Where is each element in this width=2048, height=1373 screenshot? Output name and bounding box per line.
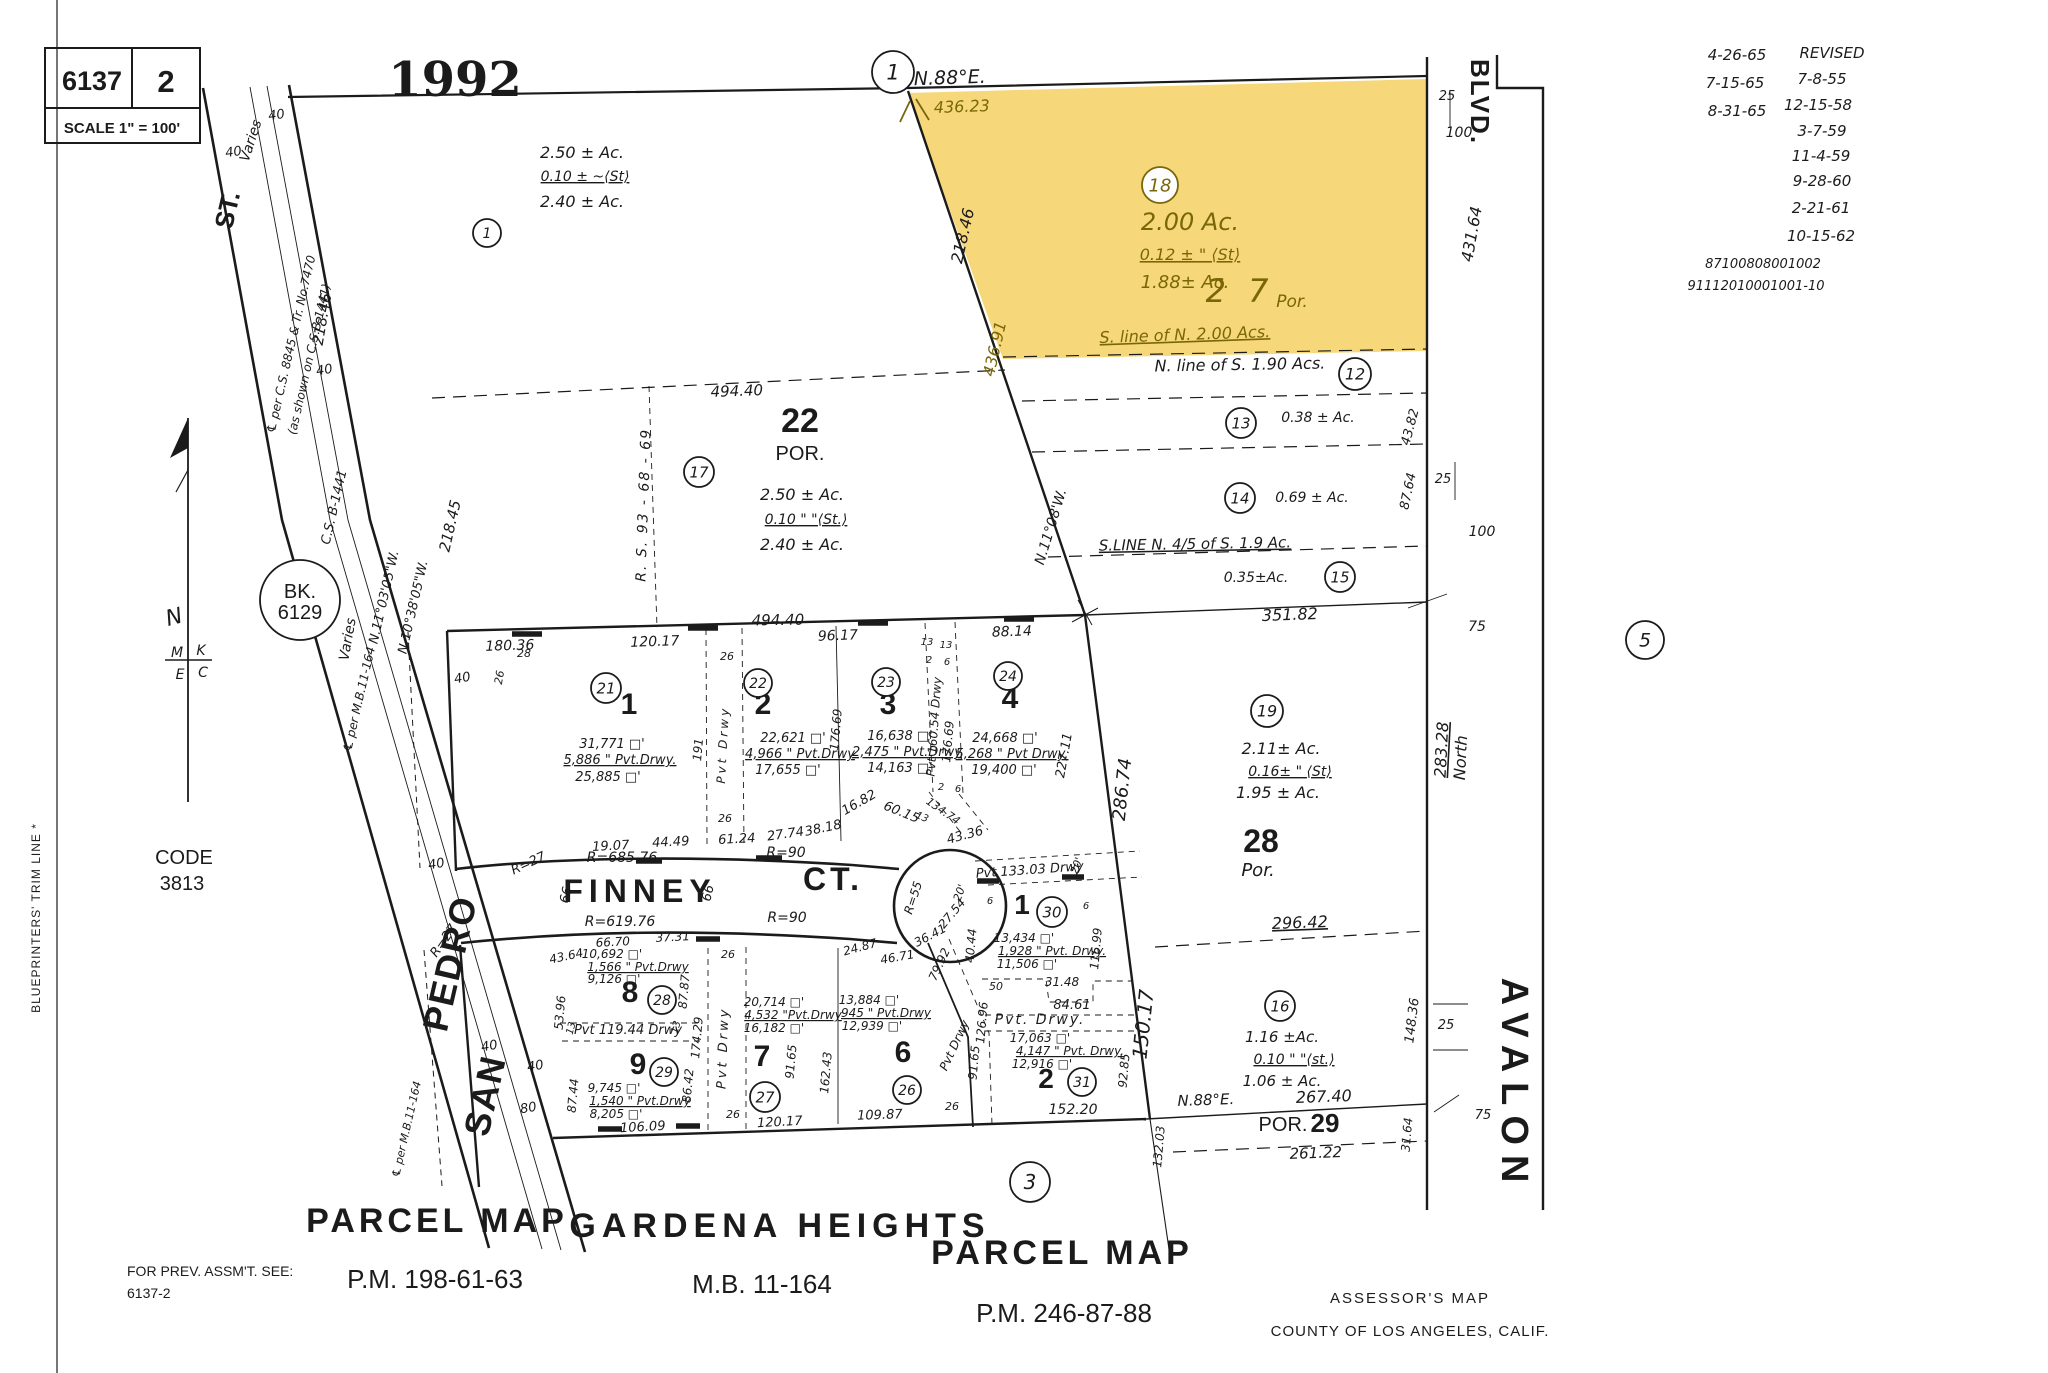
dim-26-a: 26 (492, 669, 507, 685)
dim-87-44: 87.44 (565, 1078, 582, 1113)
lot8-area-1: 10,692 □' (582, 947, 642, 961)
apn-number-2: 91112010001001-10 (1687, 279, 1824, 294)
lot9-area-2: 1,540 " Pvt.Drwy (589, 1094, 691, 1108)
dim-26-c: 26 (718, 812, 732, 825)
dim-120-17-b: 120.17 (757, 1114, 804, 1131)
lot4-area-1: 24,668 □' (972, 731, 1037, 746)
revision-date-b2: 12-15-58 (1784, 96, 1852, 114)
dim-50: 50 (989, 980, 1003, 993)
dim-120-17-a: 120.17 (630, 633, 680, 651)
parcel22-acreage-1: 2.50 ± Ac. (760, 485, 844, 504)
circle-lot-23-label: 23 (877, 675, 895, 691)
dim-174-29: 174.29 (688, 1016, 706, 1059)
parcel28-por: Por. (1241, 860, 1274, 881)
dim-46-71: 46.71 (879, 947, 915, 967)
dim-87-87: 87.87 (676, 974, 693, 1010)
lot6-number: 6 (895, 1036, 912, 1069)
revision-date-b3: 3-7-59 (1798, 122, 1847, 140)
dim-494-40-s: 494.40 (752, 611, 805, 630)
pvt-drwy-5: Pvt. Drwy. (995, 1012, 1086, 1028)
lot30-number: 1 (1014, 889, 1030, 920)
revision-header: REVISED (1799, 44, 1864, 62)
compass-c: C (198, 665, 208, 681)
dim-218-45: 218.45 (435, 498, 464, 553)
circle-lot-28-label: 28 (653, 993, 671, 1009)
circle-lot-27: 27 (750, 1082, 780, 1112)
dim-38-18: 38.18 (804, 817, 844, 839)
circle-1-top: 1 (872, 51, 914, 93)
radius-90-a: R=90 (766, 845, 805, 861)
circle-lot-30-label: 30 (1042, 903, 1061, 921)
dim-267-40: 267.40 (1296, 1086, 1353, 1107)
lot30-area-3: 11,506 □' (997, 957, 1057, 971)
sheet-number: 6137 (62, 66, 122, 96)
dim-25-bottom: 25 (1438, 1018, 1455, 1033)
parcel29-por: POR. (1259, 1114, 1308, 1136)
dim-26-b: 26 (720, 650, 734, 663)
lot7-area-1: 20,714 □' (744, 995, 804, 1009)
san-pedro-street-lines (203, 85, 585, 1252)
dim-13-a: 13 (921, 637, 934, 648)
circle-parcel-13: 13 (1226, 408, 1256, 438)
dim-40-e: 40 (427, 856, 446, 874)
bearing-san-pedro-1: N.11°03'05"W. (367, 549, 403, 645)
parcel16-acreage-1: 1.16 ±Ac. (1245, 1028, 1319, 1046)
title-pm-198: P.M. 198-61-63 (347, 1264, 523, 1294)
parcel1-acreage-2: 0.10 ± ~⟨St⟩ (541, 169, 630, 185)
dim-80: 80 (519, 1100, 538, 1118)
lot9-number: 9 (630, 1048, 647, 1081)
lot1-number: 1 (621, 688, 638, 721)
bearing-bottom: N.88°E. (1177, 1090, 1234, 1110)
dim-2-b: 2 (938, 782, 944, 793)
circle-parcel-18-label: 18 (1149, 175, 1172, 196)
circle-lot-24: 24 (994, 662, 1022, 690)
dim-27-74: 27.74 (766, 825, 805, 845)
dim-191: 191 (690, 738, 706, 762)
dim-6-b: 6 (955, 784, 961, 795)
lot1-area-1: 31,771 □' (579, 737, 644, 752)
parcel18-acreage-1: 2.00 Ac. (1141, 208, 1239, 236)
parcel14-acreage: 0.69 ± Ac. (1275, 490, 1349, 506)
circle-lot-28: 28 (648, 986, 676, 1014)
circle-parcel-1-label: 1 (483, 226, 492, 242)
dim-176-69-a: 176.69 (827, 708, 845, 751)
parcel29-number: 29 (1311, 1108, 1340, 1138)
title-parcel-map-1: PARCEL MAP (306, 1202, 568, 1240)
lot31-number: 2 (1038, 1063, 1054, 1094)
dim-75-bottom: 75 (1475, 1108, 1492, 1123)
circle-parcel-13-label: 13 (1231, 414, 1250, 432)
dim-6-d: 6 (1083, 901, 1089, 912)
code-label: CODE (155, 847, 213, 869)
circle-lot-31: 31 (1068, 1068, 1096, 1096)
circle-lot-29: 29 (650, 1058, 678, 1086)
dim-26-e: 26 (726, 1108, 740, 1121)
circle-1-top-label: 1 (886, 60, 899, 84)
dim-31-48: 31.48 (1045, 975, 1080, 989)
line-351-82 (1085, 602, 1427, 615)
circle-lot-27-label: 27 (755, 1088, 775, 1106)
dim-26-f: 26 (945, 1100, 959, 1113)
dashed-strip-lines (432, 349, 1427, 628)
line-296-42 (1155, 931, 1427, 947)
lot8-area-3: 9,126 □' (588, 972, 641, 986)
revision-date-a1: 4-26-65 (1708, 46, 1767, 64)
circle-lot-21-label: 21 (596, 679, 615, 697)
dim-40-g: 40 (526, 1058, 545, 1076)
dim-25-mid: 25 (1435, 472, 1452, 487)
prev-assmt-1: FOR PREV. ASSM'T. SEE: (127, 1263, 293, 1279)
compass-n: N (163, 604, 185, 632)
circle-lot-24-label: 24 (999, 669, 1017, 685)
radius-685-76: R=685.76 (587, 850, 658, 866)
dim-227-11: 227.11 (1053, 732, 1076, 779)
circle-parcel-16-label: 16 (1270, 997, 1289, 1015)
circle-parcel-19: 19 (1251, 695, 1283, 727)
parcel19-acreage-3: 1.95 ± Ac. (1236, 783, 1320, 802)
street-name-avalon: AVALON (1493, 978, 1535, 1193)
dim-40-c: 40 (315, 362, 334, 380)
dim-162-43: 162.43 (817, 1051, 835, 1094)
circle-lot-31-label: 31 (1073, 1075, 1091, 1091)
assessor-map-2: COUNTY OF LOS ANGELES, CALIF. (1271, 1323, 1550, 1340)
assessor-map-page: 61372SCALE 1" = 100'19924-26-657-15-658-… (0, 0, 2048, 1373)
lot7-area-3: 16,182 □' (744, 1021, 804, 1035)
dim-43-82: 43.82 (1399, 407, 1423, 447)
sheet-page: 2 (157, 64, 174, 99)
dim-96-17: 96.17 (818, 627, 859, 644)
dim-43-64: 43.64 (548, 946, 585, 967)
circle-parcel-19-label: 19 (1257, 702, 1277, 721)
dim-60-15: 60.15 (881, 799, 921, 827)
parcel18-acreage-2: 0.12 ± " ⟨St⟩ (1140, 245, 1241, 264)
varies-label-2: Varies (336, 617, 359, 662)
rs-ref: R. S. 93 - 68 - 69 (633, 428, 654, 582)
circle-lot-26-label: 26 (898, 1083, 916, 1099)
lot30-area-1: 13,434 □' (994, 931, 1054, 945)
dim-126-96: 126.96 (973, 1001, 991, 1044)
dim-31-64: 31.64 (1399, 1117, 1416, 1152)
revision-date-b6: 2-21-61 (1792, 199, 1851, 217)
title-mb-11-164: M.B. 11-164 (692, 1269, 832, 1299)
dim-431-64: 431.64 (1457, 205, 1485, 263)
circle-lot-23: 23 (872, 668, 900, 696)
dim-26-d: 26 (721, 948, 735, 961)
lot9-area-1: 9,745 □' (588, 1081, 641, 1095)
circle-lot-30: 30 (1037, 897, 1067, 927)
dim-40-f: 40 (480, 1038, 499, 1056)
circle-lot-26: 26 (893, 1076, 921, 1104)
dim-86-42: 86.42 (680, 1068, 697, 1103)
parcel22-number: 22 (781, 402, 819, 440)
dim-40-a: 40 (267, 107, 285, 124)
circle-parcel-15: 15 (1325, 562, 1355, 592)
title-gardena-heights: GARDENA HEIGHTS (569, 1207, 990, 1245)
radius-619-76: R=619.76 (585, 914, 656, 930)
dim-40-d: 40 (453, 670, 472, 688)
circle-book-6129: BK.6129 (260, 560, 340, 640)
street-suffix-st: ST. (208, 188, 246, 231)
dim-494-40-n: 494.40 (710, 381, 763, 401)
circle-lot-21: 21 (591, 673, 621, 703)
dim-106-09: 106.09 (620, 1119, 666, 1136)
radius-27-a: R=27 (509, 849, 549, 878)
dim-286-74: 286.74 (1109, 757, 1136, 822)
dim-25-top: 25 (1439, 89, 1456, 104)
dim-116-99: 116.99 (1087, 927, 1105, 970)
lot3-area-1: 16,638 □' (867, 729, 932, 744)
dim-6-a: 6 (944, 657, 950, 668)
dim-152-20: 152.20 (1049, 1102, 1098, 1118)
parcel-map-canvas: 61372SCALE 1" = 100'19924-26-657-15-658-… (0, 0, 2048, 1373)
revision-date-a3: 8-31-65 (1708, 102, 1767, 120)
dim-148-36: 148.36 (1402, 997, 1422, 1044)
n-line-note: N. line of S. 1.90 Acs. (1154, 354, 1325, 376)
lot4-area-3: 19,400 □' (971, 763, 1036, 778)
circle-parcel-14: 14 (1225, 483, 1255, 513)
assessor-map-1: ASSESSOR'S MAP (1330, 1290, 1490, 1307)
dim-351-82: 351.82 (1262, 604, 1319, 625)
lot6-area-3: 12,939 □' (842, 1019, 902, 1033)
dim-13-b: 13 (940, 640, 953, 651)
dim-132-03: 132.03 (1150, 1125, 1168, 1168)
circle-parcel-14-label: 14 (1230, 489, 1249, 507)
dim-37-31: 37.31 (655, 929, 690, 945)
parcel15-acreage: 0.35±Ac. (1224, 570, 1289, 586)
san-pedro-west-edge (203, 88, 489, 1248)
parcel28-number: 28 (1243, 823, 1279, 859)
circle-book-6129-label: BK. (284, 581, 316, 603)
lot2-area-3: 17,655 □' (755, 763, 820, 778)
scale-note: SCALE 1" = 100' (64, 120, 180, 137)
radius-90-b: R=90 (767, 910, 806, 926)
lot2-area-1: 22,621 □' (760, 731, 825, 746)
revision-date-b7: 10-15-62 (1787, 227, 1855, 245)
circle-lot-22: 22 (744, 669, 772, 697)
compass-k: K (196, 643, 207, 659)
lot6-area-2: 945 " Pvt.Drwy (841, 1006, 932, 1020)
prev-assmt-2: 6137-2 (127, 1285, 171, 1301)
dim-150-17: 150.17 (1127, 988, 1158, 1060)
circle-parcel-17: 17 (684, 457, 714, 487)
dim-91-65-b: 91.65 (966, 1045, 983, 1080)
dim-84-61: 84.61 (1053, 998, 1090, 1013)
parcel19-acreage-1: 2.11± Ac. (1242, 739, 1321, 758)
dim-261-22: 261.22 (1289, 1143, 1342, 1163)
dim-44-49: 44.49 (652, 834, 690, 851)
s-line-45-note: S.LINE N. 4/5 of S. 1.9 Ac. (1099, 533, 1292, 554)
circle-lot-29-label: 29 (655, 1065, 673, 1081)
circle-book-6129-label: 6129 (278, 602, 323, 624)
title-pm-246: P.M. 246-87-88 (976, 1298, 1152, 1328)
parcel22-por: POR. (776, 443, 825, 465)
dim-2-a: 2 (926, 655, 932, 666)
circle-parcel-12-label: 12 (1345, 365, 1365, 384)
dim-43-36: 43.36 (945, 824, 985, 848)
revision-date-a2: 7-15-65 (1706, 74, 1765, 92)
parcel22-acreage-3: 2.40 ± Ac. (760, 535, 844, 554)
revision-date-b4: 11-4-59 (1792, 147, 1851, 165)
circle-parcel-15-label: 15 (1330, 568, 1349, 586)
dim-north: North (1450, 735, 1471, 781)
dim-88-14: 88.14 (992, 623, 1033, 640)
title-parcel-map-2: PARCEL MAP (931, 1234, 1193, 1272)
lot4-area-2: 5,268 " Pvt Drwy. (955, 747, 1068, 762)
circle-ref-3: 3 (1010, 1162, 1050, 1202)
dim-16-82: 16.82 (839, 787, 879, 819)
circle-parcel-1: 1 (473, 219, 501, 247)
parcel13-acreage: 0.38 ± Ac. (1281, 410, 1355, 426)
street-name-finney: FINNEY (563, 873, 716, 909)
circle-ref-3-label: 3 (1024, 1170, 1037, 1194)
parcel1-acreage-1: 2.50 ± Ac. (540, 143, 624, 162)
circle-parcel-17-label: 17 (689, 463, 709, 481)
san-pedro-east-edge (289, 85, 585, 1252)
compass-m: M (171, 645, 183, 661)
parcel19-acreage-2: 0.16± " ⟨St⟩ (1248, 764, 1332, 780)
parcel27-por: Por. (1276, 292, 1308, 312)
circle-parcel-18: 18 (1142, 167, 1178, 203)
revision-date-b5: 9-28-60 (1793, 172, 1852, 190)
lot7-area-2: 4,532 "Pvt.Drwy (744, 1008, 843, 1022)
dim-40-44: 40.44 (963, 928, 980, 963)
code-value: 3813 (160, 873, 205, 895)
circle-ref-5-label: 5 (1639, 630, 1651, 652)
lot6-area-1: 13,884 □' (839, 993, 899, 1007)
dim-134-74: 134.74 (924, 795, 963, 828)
circle-parcel-12: 12 (1339, 358, 1371, 390)
bearing-top: N.88°E. (913, 66, 986, 90)
circle-parcel-16: 16 (1265, 991, 1295, 1021)
dim-40-b: 40 (224, 144, 242, 161)
dim-75-mid: 75 (1468, 619, 1486, 635)
lot1-area-3: 25,885 □' (575, 770, 640, 785)
pvt-drwy-119: Pvt 119.44 Drwy (574, 1023, 682, 1038)
lot31-area-1: 17,063 □' (1010, 1031, 1070, 1045)
dim-296-42: 296.42 (1272, 912, 1329, 933)
street-name-san: SAN (456, 1051, 514, 1140)
lot7-number: 7 (754, 1040, 771, 1073)
compass-e: E (176, 667, 185, 683)
street-name-blvd: BLVD. (1465, 59, 1495, 145)
trim-note: BLUEPRINTERS' TRIM LINE * (29, 823, 43, 1013)
parcel16-acreage-2: 0.10 " "⟨st.⟩ (1253, 1052, 1334, 1068)
bearing-san-pedro-2: N.10°38'05"W. (396, 559, 432, 655)
lot1-area-2: 5,886 " Pvt.Drwy. (563, 753, 676, 768)
lot9-area-3: 8,205 □' (590, 1107, 643, 1121)
parcel1-acreage-3: 2.40 ± Ac. (540, 192, 624, 211)
dim-100-mid: 100 (1469, 524, 1496, 540)
dim-87-64: 87.64 (1397, 472, 1419, 512)
dim-436-23: 436.23 (934, 96, 991, 117)
street-name-ct: CT. (803, 861, 863, 897)
dim-109-87: 109.87 (857, 1107, 904, 1124)
dim-6-c: 6 (987, 896, 993, 907)
parcel27-number: 2 7 (1206, 272, 1275, 310)
circle-lot-22-label: 22 (749, 676, 767, 692)
map-year: 1992 (388, 52, 522, 108)
centerline-note-4: ℄ per M.B.11-164 (389, 1080, 424, 1179)
dim-283-28: 283.28 (1431, 721, 1453, 778)
circle-ref-5: 5 (1626, 621, 1664, 659)
pvt-drwy-3: Pvt Drwy (715, 1006, 733, 1089)
apn-number-1: 87100808001002 (1705, 257, 1821, 272)
parcel22-acreage-2: 0.10 " "⟨St.⟩ (765, 512, 848, 528)
pvt-drwy-1: Pvt Drwy (714, 706, 732, 785)
lot31-area-2: 4,147 " Pvt. Drwy. (1016, 1044, 1124, 1058)
dim-91-65-a: 91.65 (783, 1044, 800, 1079)
revision-date-b1: 7-8-55 (1798, 70, 1847, 88)
dim-28: 28 (517, 647, 531, 660)
dim-61-24: 61.24 (718, 831, 756, 848)
